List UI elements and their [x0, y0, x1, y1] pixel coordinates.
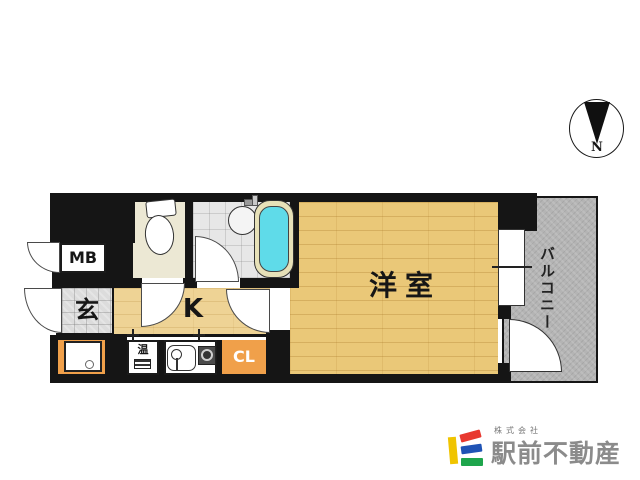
wall-right-mid-block — [498, 304, 511, 319]
washing-machine-pan-icon — [64, 341, 102, 372]
wall-right-top-block — [498, 193, 537, 231]
water-heater-label: 温 — [128, 344, 158, 355]
washing-drain-icon — [85, 360, 94, 369]
wall-entrance-kitchen — [112, 288, 114, 335]
tick-mark — [198, 329, 200, 341]
logo-mark-icon — [444, 420, 492, 470]
kitchen-label: K — [170, 296, 216, 322]
entrance-label: 玄 — [62, 298, 112, 322]
wall-closet-right — [266, 330, 290, 377]
tick-mark — [132, 329, 134, 341]
company-name-label: 駅前不動産 — [491, 434, 621, 470]
bathtub-icon — [259, 206, 289, 272]
logo-stripe-green — [461, 458, 483, 466]
logo-stripe-red — [459, 429, 481, 442]
water-heater-icon — [134, 359, 151, 369]
balcony-window-tick — [492, 266, 532, 268]
logo-bar-yellow — [448, 437, 458, 465]
closet-label: CL — [222, 349, 266, 365]
wall-toilet-bath — [185, 197, 193, 288]
entrance-door-arc — [24, 288, 62, 333]
floor-plan-page: 温 MB 玄 K 洋室 CL バルコニー N 株式会社 駅前不動産 — [0, 0, 640, 480]
compass-north-label: N — [585, 141, 609, 154]
wall-under-mb — [52, 272, 105, 288]
balcony-label: バルコニー — [534, 234, 554, 342]
wall-top-left-mass — [50, 193, 135, 243]
wall-laundry-right — [105, 337, 127, 377]
kitchen-faucet-stem-icon — [176, 358, 178, 370]
western-room-label: 洋室 — [328, 272, 474, 300]
wall-band-toilet-left — [103, 243, 133, 288]
company-logo: 株式会社 駅前不動産 — [444, 420, 634, 474]
mb-door-arc — [27, 242, 60, 273]
meter-box-label: MB — [60, 250, 106, 266]
logo-stripe-blue — [461, 444, 483, 455]
stove-burner-icon — [201, 349, 213, 361]
bath-sink-icon — [228, 206, 257, 235]
